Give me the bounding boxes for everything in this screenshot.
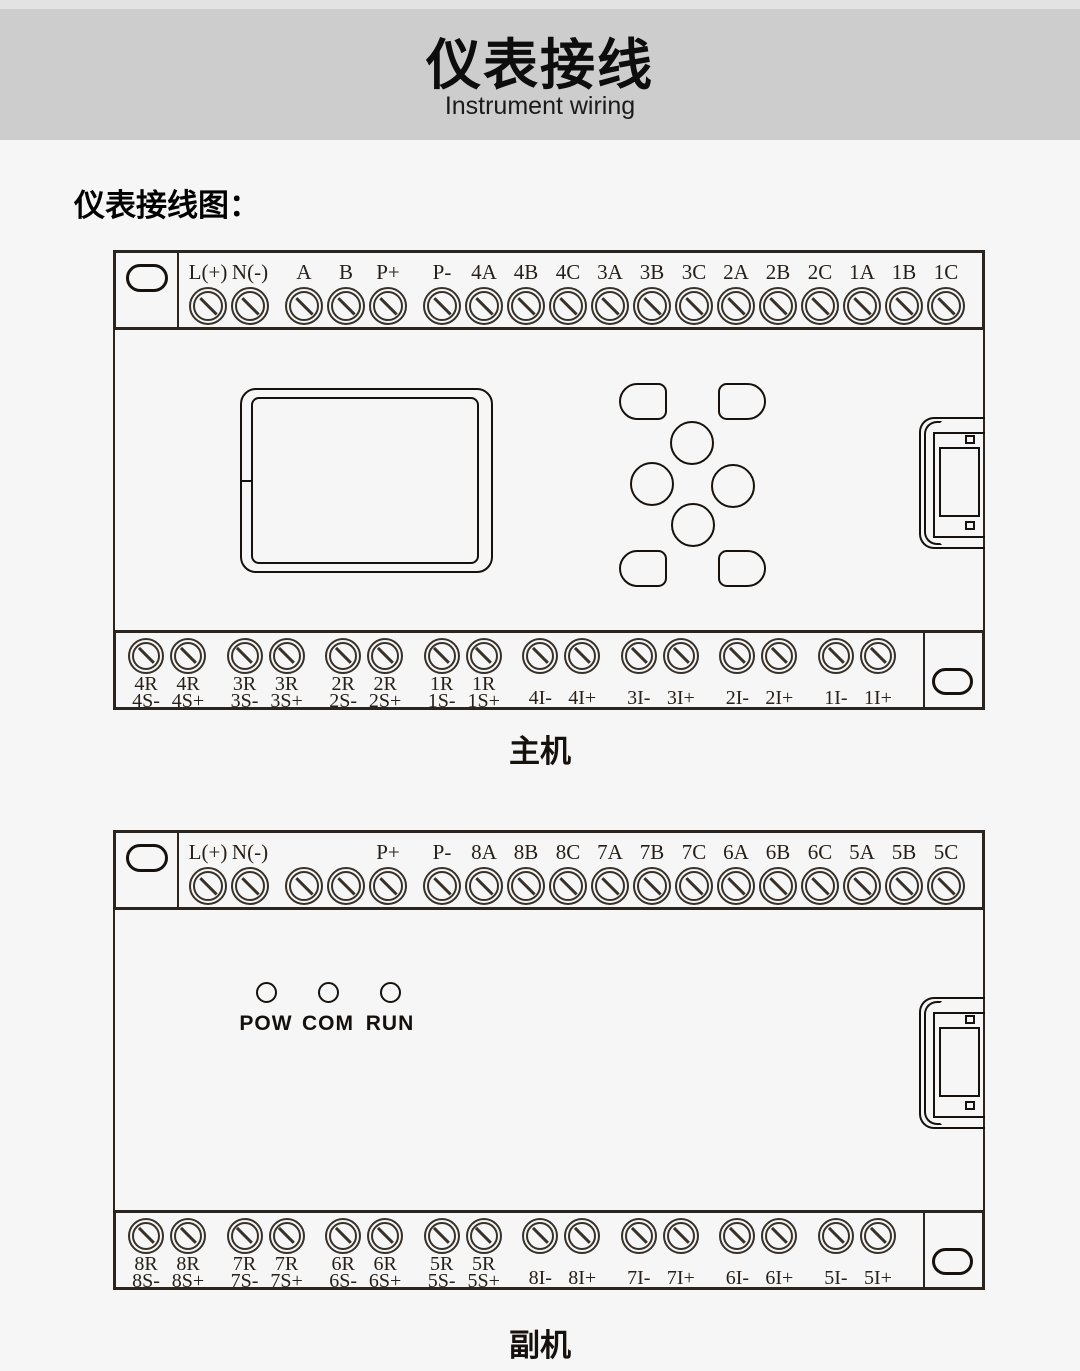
keypad-button-top-left-icon [619, 383, 667, 420]
screw-head-icon [193, 871, 223, 901]
terminal-label: 7B [640, 836, 665, 867]
terminal-label: 8C [556, 836, 581, 867]
screw-slot-icon [601, 297, 619, 315]
screw-terminal-icon [860, 1218, 896, 1254]
terminal-bottom-3I-: 3I- [618, 638, 660, 707]
terminal-pair: 2I-2I+ [716, 638, 800, 707]
side-connector-notch-bottom [965, 521, 975, 530]
screw-slot-icon [337, 297, 355, 315]
screw-slot-icon [138, 1228, 155, 1245]
screw-head-icon [721, 291, 751, 321]
screw-slot-icon [601, 877, 619, 895]
terminal-bottom-5S-: 5R5S- [421, 1218, 463, 1287]
screw-slot-icon [517, 297, 535, 315]
screw-head-icon [765, 642, 793, 670]
terminal-label: 2S+ [369, 693, 401, 710]
terminal-label: 1I- [824, 690, 847, 707]
terminal-bottom-7I-: 7I- [618, 1218, 660, 1287]
screw-slot-icon [771, 1228, 788, 1245]
lcd-display [240, 388, 493, 573]
screw-head-icon [625, 1222, 653, 1250]
screw-head-icon [469, 871, 499, 901]
terminal-top-L(+): L(+) [187, 256, 229, 327]
terminal-bottom-3S-: 3R3S- [224, 638, 266, 707]
led-label: RUN [366, 1012, 415, 1036]
screw-slot-icon [895, 877, 913, 895]
terminal-top-1C: 1C [925, 256, 967, 327]
screw-slot-icon [377, 1228, 394, 1245]
terminal-top-blank [283, 836, 325, 907]
terminal-bottom-1S+: 1R1S+ [463, 638, 505, 707]
screw-terminal-icon [367, 1218, 403, 1254]
screw-head-icon [679, 871, 709, 901]
terminal-label: P- [433, 836, 452, 867]
page-title: 仪表接线 [0, 34, 1080, 96]
screw-head-icon [864, 642, 892, 670]
sub-unit-caption: 副机 [0, 1320, 1080, 1365]
terminal-label: 3A [597, 256, 623, 287]
terminal-top-P+: P+ [367, 836, 409, 907]
screw-slot-icon [870, 648, 887, 665]
side-connector-window [939, 1027, 980, 1097]
screw-head-icon [723, 1222, 751, 1250]
keypad-button-bottom-right-icon [718, 550, 766, 587]
screw-terminal-icon [621, 1218, 657, 1254]
keypad-button-left-icon [630, 462, 674, 506]
screw-head-icon [763, 871, 793, 901]
terminal-top-8B: 8B [505, 836, 547, 907]
terminal-pair: 8R8S-8R8S+ [125, 1218, 209, 1287]
screw-head-icon [822, 1222, 850, 1250]
terminal-label: 7S+ [270, 1273, 302, 1290]
terminal-pair: 1I-1I+ [815, 638, 899, 707]
screw-slot-icon [870, 1228, 887, 1245]
terminal-label: 4B [514, 256, 539, 287]
screw-slot-icon [532, 1228, 549, 1245]
screw-terminal-icon [367, 638, 403, 674]
keypad-button-up-icon [670, 421, 714, 465]
screw-terminal-icon [269, 638, 305, 674]
terminal-label: 4A [471, 256, 497, 287]
terminal-label: 5S+ [467, 1273, 499, 1290]
screw-slot-icon [771, 648, 788, 665]
screw-slot-icon [335, 648, 352, 665]
keypad-button-down-icon [671, 503, 715, 547]
keypad-button-bottom-left-icon [619, 550, 667, 587]
screw-terminal-icon [522, 638, 558, 674]
screw-terminal-icon [818, 1218, 854, 1254]
screw-slot-icon [643, 877, 661, 895]
screw-terminal-icon [231, 867, 269, 905]
screw-terminal-icon [522, 1218, 558, 1254]
terminal-label: 8I- [529, 1270, 552, 1287]
terminal-label: 6S+ [369, 1273, 401, 1290]
screw-head-icon [889, 291, 919, 321]
screw-terminal-icon [818, 638, 854, 674]
screw-slot-icon [180, 648, 197, 665]
screw-slot-icon [278, 648, 295, 665]
bottom-terminal-strip: 4R4S-4R4S+3R3S-3R3S+2R2S-2R2S+1R1S-1R1S+… [113, 630, 985, 710]
led-pow: POW [235, 982, 297, 1036]
terminal-top-5A: 5A [841, 836, 883, 907]
terminal-bottom-1I-: 1I- [815, 638, 857, 707]
screw-slot-icon [727, 297, 745, 315]
screw-head-icon [763, 291, 793, 321]
top-terminal-strip: L(+)N(-)P+P-8A8B8C7A7B7C6A6B6C5A5B5C [113, 830, 985, 910]
screw-terminal-icon [591, 287, 629, 325]
screw-head-icon [427, 871, 457, 901]
page-subtitle: Instrument wiring [0, 92, 1080, 121]
bottom-terminals-row: 4R4S-4R4S+3R3S-3R3S+2R2S-2R2S+1R1S-1R1S+… [116, 633, 923, 707]
screw-terminal-icon [423, 287, 461, 325]
terminal-bottom-2S-: 2R2S- [322, 638, 364, 707]
screw-slot-icon [685, 297, 703, 315]
terminal-label: 7S- [231, 1273, 259, 1290]
screw-terminal-icon [285, 287, 323, 325]
screw-terminal-icon [801, 287, 839, 325]
terminal-top-P+: P+ [367, 256, 409, 327]
screw-slot-icon [811, 297, 829, 315]
top-light-strip [0, 0, 1080, 9]
device-body [113, 908, 985, 1212]
terminal-top-6C: 6C [799, 836, 841, 907]
terminal-label: B [339, 256, 353, 287]
keypad-button-top-right-icon [718, 383, 766, 420]
screw-head-icon [847, 871, 877, 901]
screw-slot-icon [685, 877, 703, 895]
terminal-label: 6I+ [765, 1270, 793, 1287]
screw-head-icon [568, 642, 596, 670]
screw-terminal-icon [465, 287, 503, 325]
mounting-slot-box [923, 1213, 982, 1287]
led-label: POW [239, 1012, 292, 1036]
screw-slot-icon [853, 877, 871, 895]
screw-slot-icon [295, 297, 313, 315]
screw-head-icon [805, 291, 835, 321]
terminal-bottom-4I+: 4I+ [561, 638, 603, 707]
screw-head-icon [931, 291, 961, 321]
terminal-label: 1S- [428, 693, 456, 710]
screw-terminal-icon [227, 1218, 263, 1254]
screw-slot-icon [532, 648, 549, 665]
screw-terminal-icon [369, 867, 407, 905]
screw-slot-icon [672, 1228, 689, 1245]
terminal-top-P-: P- [421, 256, 463, 327]
terminal-top-5C: 5C [925, 836, 967, 907]
screw-slot-icon [433, 1228, 450, 1245]
lcd-display-inner [251, 397, 479, 564]
screw-head-icon [637, 291, 667, 321]
terminal-pair: 4I-4I+ [519, 638, 603, 707]
screw-head-icon [331, 291, 361, 321]
terminal-bottom-7S-: 7R7S- [224, 1218, 266, 1287]
terminal-bottom-7S+: 7R7S+ [266, 1218, 308, 1287]
terminal-label: 5C [934, 836, 959, 867]
terminal-label: 5B [892, 836, 917, 867]
terminal-label: 1C [934, 256, 959, 287]
terminal-label: 3I- [627, 690, 650, 707]
screw-slot-icon [475, 1228, 492, 1245]
screw-terminal-icon [369, 287, 407, 325]
screw-head-icon [373, 291, 403, 321]
terminal-top-6B: 6B [757, 836, 799, 907]
screw-head-icon [470, 642, 498, 670]
screw-head-icon [526, 1222, 554, 1250]
terminal-label: 3C [682, 256, 707, 287]
terminal-bottom-8I+: 8I+ [561, 1218, 603, 1287]
screw-slot-icon [138, 648, 155, 665]
screw-terminal-icon [759, 867, 797, 905]
terminal-top-B: B [325, 256, 367, 327]
terminal-label: 8I+ [568, 1270, 596, 1287]
screw-slot-icon [729, 648, 746, 665]
screw-head-icon [289, 291, 319, 321]
screw-terminal-icon [327, 287, 365, 325]
screw-terminal-icon [633, 867, 671, 905]
screw-terminal-icon [885, 867, 923, 905]
screw-head-icon [721, 871, 751, 901]
screw-slot-icon [937, 877, 955, 895]
screw-slot-icon [574, 1228, 591, 1245]
screw-slot-icon [672, 648, 689, 665]
screw-terminal-icon [507, 867, 545, 905]
screw-terminal-icon [663, 638, 699, 674]
screw-slot-icon [377, 648, 394, 665]
terminal-label: 2I- [726, 690, 749, 707]
screw-terminal-icon [719, 1218, 755, 1254]
terminal-label: 4S- [132, 693, 160, 710]
terminal-label: 6I- [726, 1270, 749, 1287]
terminal-bottom-4S+: 4R4S+ [167, 638, 209, 707]
screw-slot-icon [895, 297, 913, 315]
screw-head-icon [765, 1222, 793, 1250]
terminal-top-3A: 3A [589, 256, 631, 327]
terminal-bottom-4I-: 4I- [519, 638, 561, 707]
terminal-bottom-5I+: 5I+ [857, 1218, 899, 1287]
screw-terminal-icon [633, 287, 671, 325]
terminal-bottom-2I-: 2I- [716, 638, 758, 707]
screw-head-icon [526, 642, 554, 670]
terminal-label: N(-) [232, 836, 268, 867]
screw-slot-icon [559, 297, 577, 315]
screw-terminal-icon [189, 867, 227, 905]
screw-terminal-icon [424, 1218, 460, 1254]
terminal-pair: 3R3S-3R3S+ [224, 638, 308, 707]
screw-terminal-icon [170, 638, 206, 674]
screw-head-icon [511, 291, 541, 321]
keypad [619, 383, 766, 586]
screw-head-icon [931, 871, 961, 901]
screw-slot-icon [379, 877, 397, 895]
terminal-bottom-6I+: 6I+ [758, 1218, 800, 1287]
screw-slot-icon [517, 877, 535, 895]
screw-head-icon [193, 291, 223, 321]
terminal-label: 6C [808, 836, 833, 867]
screw-head-icon [595, 291, 625, 321]
screw-head-icon [469, 291, 499, 321]
screw-head-icon [595, 871, 625, 901]
terminal-label: 2I+ [765, 690, 793, 707]
screw-terminal-icon [801, 867, 839, 905]
screw-slot-icon [199, 877, 217, 895]
screw-head-icon [428, 1222, 456, 1250]
screw-terminal-icon [761, 638, 797, 674]
screw-terminal-icon [564, 638, 600, 674]
terminal-label: 2C [808, 256, 833, 287]
screw-head-icon [273, 642, 301, 670]
screw-terminal-icon [675, 867, 713, 905]
screw-slot-icon [241, 877, 259, 895]
terminal-bottom-2S+: 2R2S+ [364, 638, 406, 707]
screw-slot-icon [769, 297, 787, 315]
screw-slot-icon [236, 648, 253, 665]
screw-slot-icon [337, 877, 355, 895]
screw-head-icon [667, 642, 695, 670]
terminal-top-N(-): N(-) [229, 836, 271, 907]
screw-head-icon [273, 1222, 301, 1250]
terminal-label: 3S- [231, 693, 259, 710]
screw-head-icon [231, 1222, 259, 1250]
screw-slot-icon [199, 297, 217, 315]
led-indicator-icon [380, 982, 401, 1003]
screw-terminal-icon [719, 638, 755, 674]
screw-terminal-icon [564, 1218, 600, 1254]
terminal-label: 3S+ [270, 693, 302, 710]
screw-slot-icon [630, 648, 647, 665]
terminal-label: 7I- [627, 1270, 650, 1287]
screw-slot-icon [335, 1228, 352, 1245]
screw-terminal-icon [860, 638, 896, 674]
terminal-label: 2B [766, 256, 791, 287]
main-unit-diagram: L(+)N(-)ABP+P-4A4B4C3A3B3C2A2B2C1A1B1C 4… [113, 250, 985, 710]
terminal-bottom-6S+: 6R6S+ [364, 1218, 406, 1287]
screw-head-icon [847, 291, 877, 321]
terminal-pair: 6I-6I+ [716, 1218, 800, 1287]
terminal-top-4B: 4B [505, 256, 547, 327]
screw-terminal-icon [885, 287, 923, 325]
terminal-label: P- [433, 256, 452, 287]
terminal-pair: 4R4S-4R4S+ [125, 638, 209, 707]
screw-slot-icon [433, 877, 451, 895]
terminal-top-N(-): N(-) [229, 256, 271, 327]
screw-terminal-icon [843, 287, 881, 325]
terminal-pair: 5I-5I+ [815, 1218, 899, 1287]
side-connector-notch-top [965, 1015, 975, 1024]
terminal-label: 5A [849, 836, 875, 867]
terminal-bottom-8S+: 8R8S+ [167, 1218, 209, 1287]
terminal-label: 5I+ [864, 1270, 892, 1287]
main-unit-caption: 主机 [0, 726, 1080, 771]
side-connector [919, 997, 985, 1129]
terminal-top-3C: 3C [673, 256, 715, 327]
screw-head-icon [371, 642, 399, 670]
sub-unit-diagram: L(+)N(-)P+P-8A8B8C7A7B7C6A6B6C5A5B5C POW… [113, 830, 985, 1290]
screw-head-icon [864, 1222, 892, 1250]
screw-terminal-icon [325, 638, 361, 674]
terminal-label: N(-) [232, 256, 268, 287]
terminal-label: 7C [682, 836, 707, 867]
terminal-top-A: A [283, 256, 325, 327]
screw-head-icon [427, 291, 457, 321]
screw-terminal-icon [591, 867, 629, 905]
screw-terminal-icon [549, 867, 587, 905]
screw-head-icon [822, 642, 850, 670]
terminal-label: 7A [597, 836, 623, 867]
screw-slot-icon [769, 877, 787, 895]
terminal-top-8C: 8C [547, 836, 589, 907]
screw-terminal-icon [927, 287, 965, 325]
screw-head-icon [805, 871, 835, 901]
screw-head-icon [470, 1222, 498, 1250]
terminal-label: 6A [723, 836, 749, 867]
terminal-top-2B: 2B [757, 256, 799, 327]
screw-terminal-icon [621, 638, 657, 674]
screw-slot-icon [433, 648, 450, 665]
terminal-label: 7I+ [667, 1270, 695, 1287]
screw-terminal-icon [424, 638, 460, 674]
side-connector [919, 417, 985, 549]
screw-head-icon [553, 291, 583, 321]
terminal-label: 6B [766, 836, 791, 867]
terminal-label: 4I+ [568, 690, 596, 707]
screw-terminal-icon [663, 1218, 699, 1254]
mounting-slot-icon [126, 264, 168, 292]
screw-head-icon [235, 291, 265, 321]
terminal-top-1A: 1A [841, 256, 883, 327]
terminal-label: L(+) [189, 836, 228, 867]
screw-slot-icon [295, 877, 313, 895]
screw-slot-icon [828, 1228, 845, 1245]
terminal-label: 5S- [428, 1273, 456, 1290]
terminal-top-4A: 4A [463, 256, 505, 327]
terminal-top-7B: 7B [631, 836, 673, 907]
screw-terminal-icon [759, 287, 797, 325]
terminal-label: 3B [640, 256, 665, 287]
screw-head-icon [889, 871, 919, 901]
screw-terminal-icon [269, 1218, 305, 1254]
screw-terminal-icon [761, 1218, 797, 1254]
terminal-label: 8B [514, 836, 539, 867]
bottom-terminal-strip: 8R8S-8R8S+7R7S-7R7S+6R6S-6R6S+5R5S-5R5S+… [113, 1210, 985, 1290]
mounting-slot-icon [126, 844, 168, 872]
terminal-top-2C: 2C [799, 256, 841, 327]
terminal-top-5B: 5B [883, 836, 925, 907]
top-terminals-row: L(+)N(-)P+P-8A8B8C7A7B7C6A6B6C5A5B5C [179, 833, 982, 907]
screw-terminal-icon [843, 867, 881, 905]
terminal-top-P-: P- [421, 836, 463, 907]
terminal-pair: 7I-7I+ [618, 1218, 702, 1287]
terminal-pair: 8I-8I+ [519, 1218, 603, 1287]
screw-slot-icon [853, 297, 871, 315]
terminal-label: L(+) [189, 256, 228, 287]
screw-terminal-icon [466, 638, 502, 674]
status-led-group: POWCOMRUN [235, 982, 421, 1036]
screw-terminal-icon [170, 1218, 206, 1254]
screw-terminal-icon [128, 638, 164, 674]
screw-slot-icon [236, 1228, 253, 1245]
top-terminal-strip: L(+)N(-)ABP+P-4A4B4C3A3B3C2A2B2C1A1B1C [113, 250, 985, 330]
screw-head-icon [667, 1222, 695, 1250]
terminal-label: P+ [376, 256, 400, 287]
screw-head-icon [235, 871, 265, 901]
screw-terminal-icon [189, 287, 227, 325]
terminal-pair: 7R7S-7R7S+ [224, 1218, 308, 1287]
screw-head-icon [679, 291, 709, 321]
terminal-bottom-8S-: 8R8S- [125, 1218, 167, 1287]
screw-slot-icon [630, 1228, 647, 1245]
terminal-pair: 2R2S-2R2S+ [322, 638, 406, 707]
screw-terminal-icon [325, 1218, 361, 1254]
